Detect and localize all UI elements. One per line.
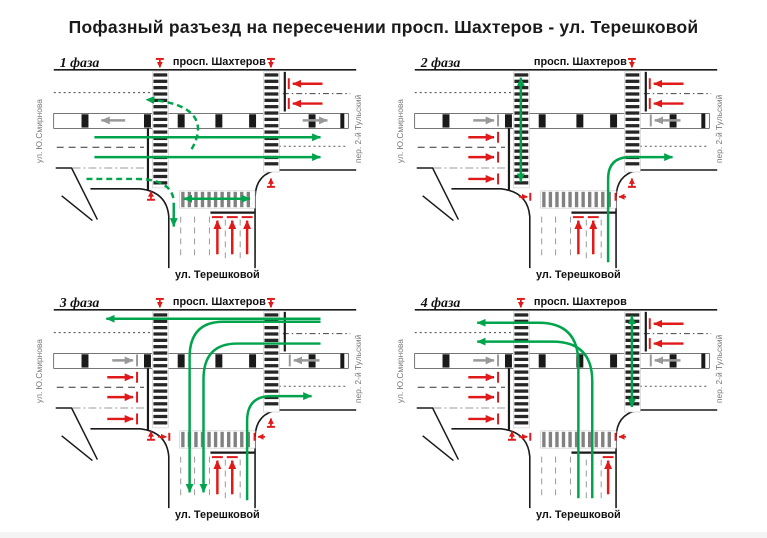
phase-panel-2: 2 фазапросп. Шахтеровул. Терешковойул. Ю… [387, 52, 740, 290]
street-label-top: просп. Шахтеров [173, 296, 266, 308]
movement-arrows [468, 59, 683, 262]
street-label-left: ул. Ю.Смирнова [34, 99, 44, 163]
street-labels: 1 фазапросп. Шахтеровул. Терешковойул. Ю… [34, 56, 363, 281]
street-label-bottom: ул. Терешковой [536, 269, 621, 281]
page-title: Пофазный разъезд на пересечении просп. Ш… [0, 17, 767, 38]
movement-arrows [106, 299, 320, 500]
street-label-bottom: ул. Терешковой [175, 269, 260, 281]
movement-arrows [468, 299, 683, 498]
crosswalk-zebras [513, 72, 640, 208]
movement-arrows [86, 59, 327, 254]
street-label-right: пер. 2-й Тульский [714, 94, 724, 163]
intersection-diagram-phase-3: 3 фазапросп. Шахтеровул. Терешковойул. Ю… [26, 292, 379, 530]
intersection-diagram-phase-2: 2 фазапросп. Шахтеровул. Терешковойул. Ю… [387, 52, 740, 290]
street-label-left: ул. Ю.Смирнова [395, 339, 405, 403]
phase-panel-1: 1 фазапросп. Шахтеровул. Терешковойул. Ю… [26, 52, 379, 290]
phase-label: 3 фаза [59, 296, 100, 311]
phase-panel-4: 4 фазапросп. Шахтеровул. Терешковойул. Ю… [387, 292, 740, 530]
road-geometry [415, 310, 717, 508]
intersection-diagram-phase-4: 4 фазапросп. Шахтеровул. Терешковойул. Ю… [387, 292, 740, 530]
crosswalk-zebras [152, 72, 279, 208]
street-label-bottom: ул. Терешковой [175, 509, 260, 521]
green-right-turn-south-to-east [608, 157, 672, 262]
intersection-diagram-phase-1: 1 фазапросп. Шахтеровул. Терешковойул. Ю… [26, 52, 379, 290]
road-geometry [54, 310, 356, 508]
street-label-left: ул. Ю.Смирнова [395, 99, 405, 163]
street-label-left: ул. Ю.Смирнова [34, 339, 44, 403]
street-label-right: пер. 2-й Тульский [714, 334, 724, 403]
road-geometry [54, 70, 356, 268]
page-bottom-edge [0, 532, 767, 538]
slide-canvas: Пофазный разъезд на пересечении просп. Ш… [0, 0, 767, 538]
street-label-bottom: ул. Терешковой [536, 509, 621, 521]
phase-label: 1 фаза [60, 56, 100, 71]
street-label-right: пер. 2-й Тульский [353, 94, 363, 163]
crosswalk-zebras [152, 312, 279, 448]
phase-label: 2 фаза [420, 56, 461, 71]
crosswalk-zebras [513, 312, 640, 448]
street-label-top: просп. Шахтеров [534, 56, 627, 68]
phase-label: 4 фаза [420, 296, 461, 311]
road-geometry [415, 70, 717, 268]
street-label-top: просп. Шахтеров [173, 56, 266, 68]
street-label-right: пер. 2-й Тульский [353, 334, 363, 403]
street-labels: 4 фазапросп. Шахтеровул. Терешковойул. Ю… [395, 296, 724, 521]
street-label-top: просп. Шахтеров [534, 296, 627, 308]
street-labels: 2 фазапросп. Шахтеровул. Терешковойул. Ю… [395, 56, 724, 281]
phase-panel-3: 3 фазапросп. Шахтеровул. Терешковойул. Ю… [26, 292, 379, 530]
